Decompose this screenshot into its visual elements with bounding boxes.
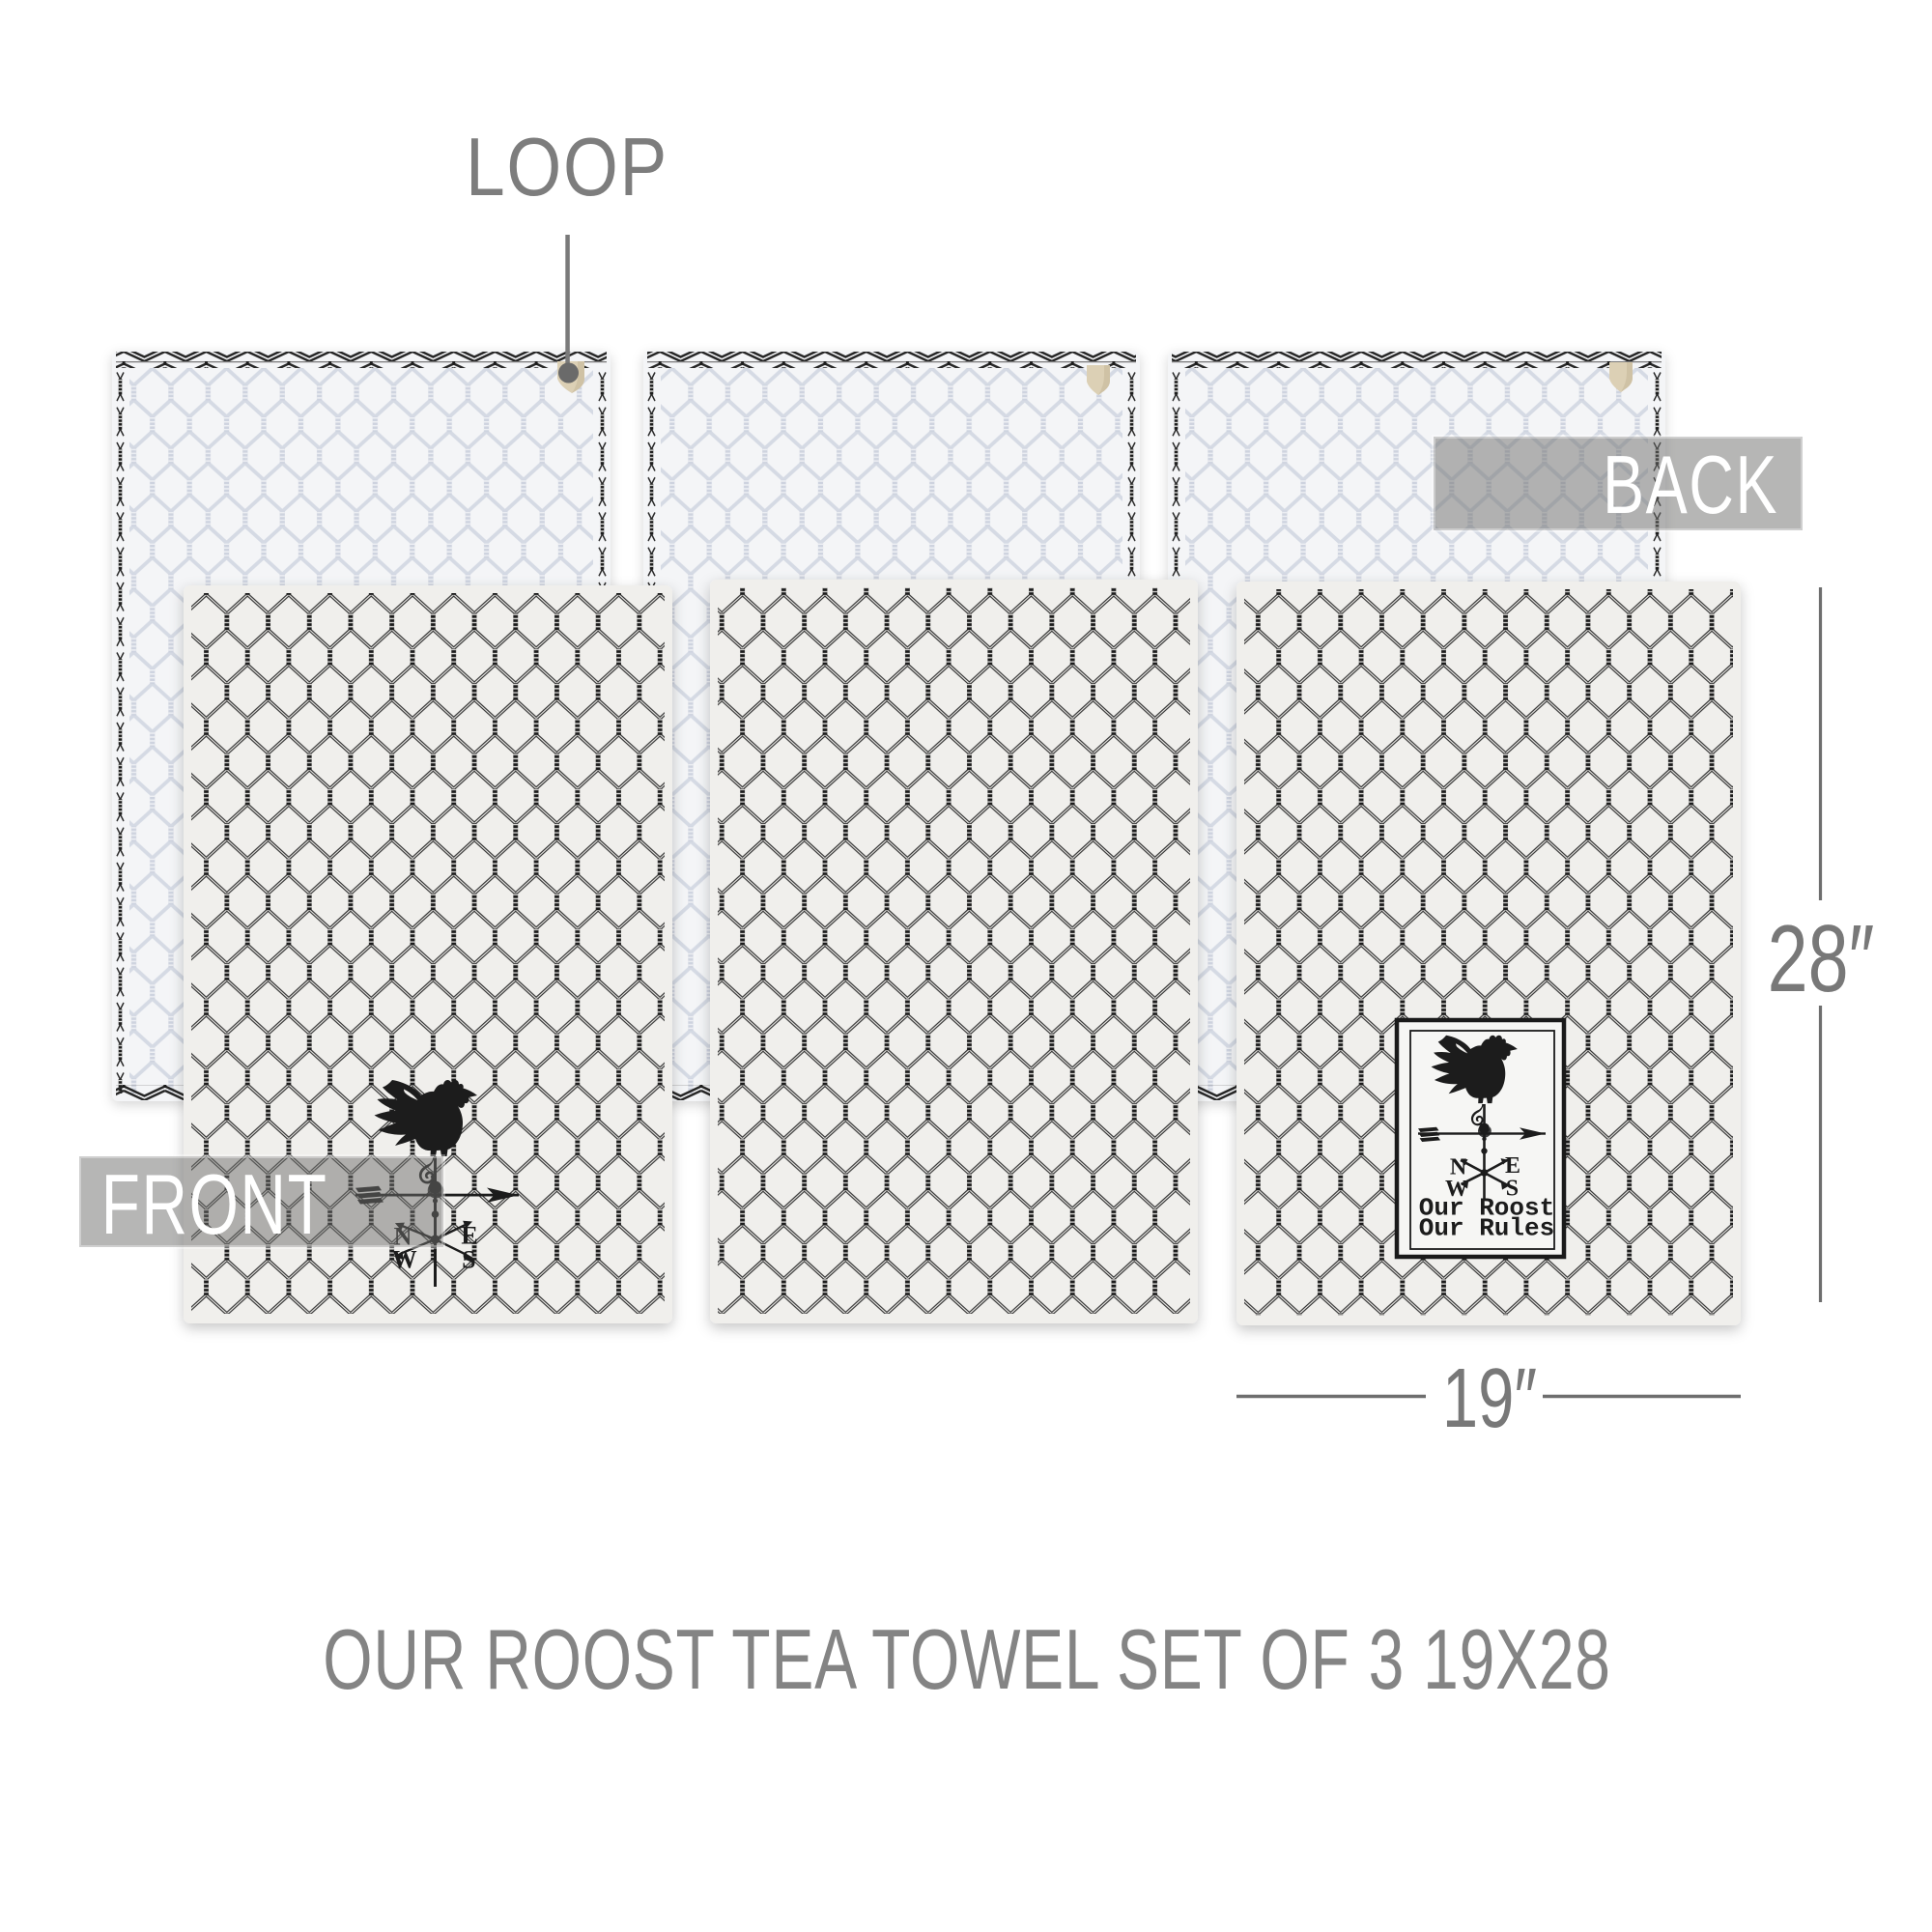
svg-text:28″: 28″ — [1768, 905, 1875, 1011]
svg-text:E: E — [1505, 1153, 1520, 1179]
svg-text:LOOP: LOOP — [466, 121, 668, 213]
svg-text:S: S — [462, 1246, 475, 1274]
svg-text:19″: 19″ — [1442, 1352, 1537, 1445]
svg-text:FRONT: FRONT — [101, 1158, 328, 1252]
svg-text:OUR ROOST TEA TOWEL SET OF 3 1: OUR ROOST TEA TOWEL SET OF 3 19X28 — [323, 1613, 1610, 1707]
svg-text:W: W — [392, 1246, 417, 1274]
svg-text:Our Rules: Our Rules — [1419, 1214, 1554, 1243]
svg-text:BACK: BACK — [1603, 439, 1778, 530]
